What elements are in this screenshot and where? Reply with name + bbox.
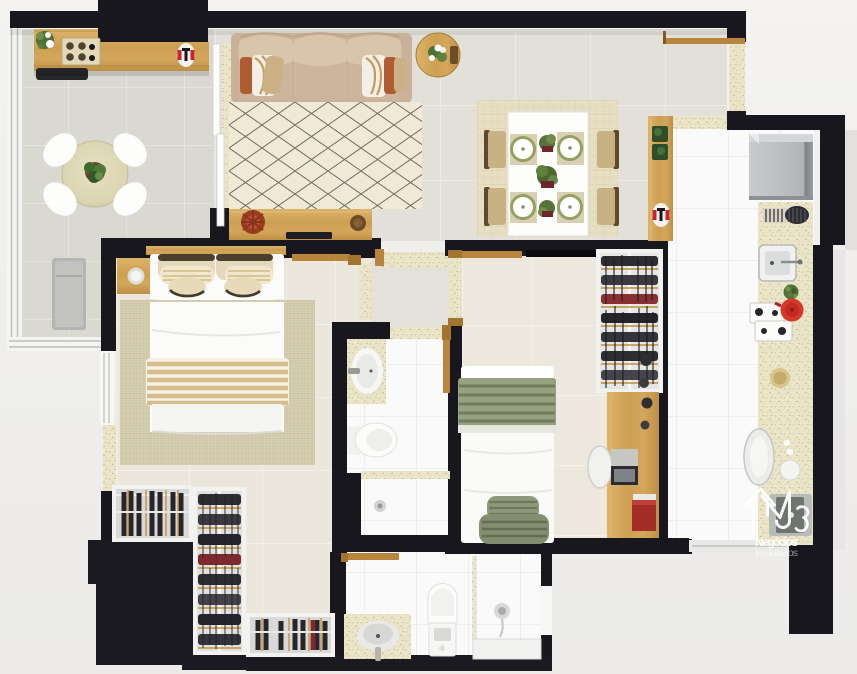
- svg-text:Imobiliários: Imobiliários: [755, 547, 798, 559]
